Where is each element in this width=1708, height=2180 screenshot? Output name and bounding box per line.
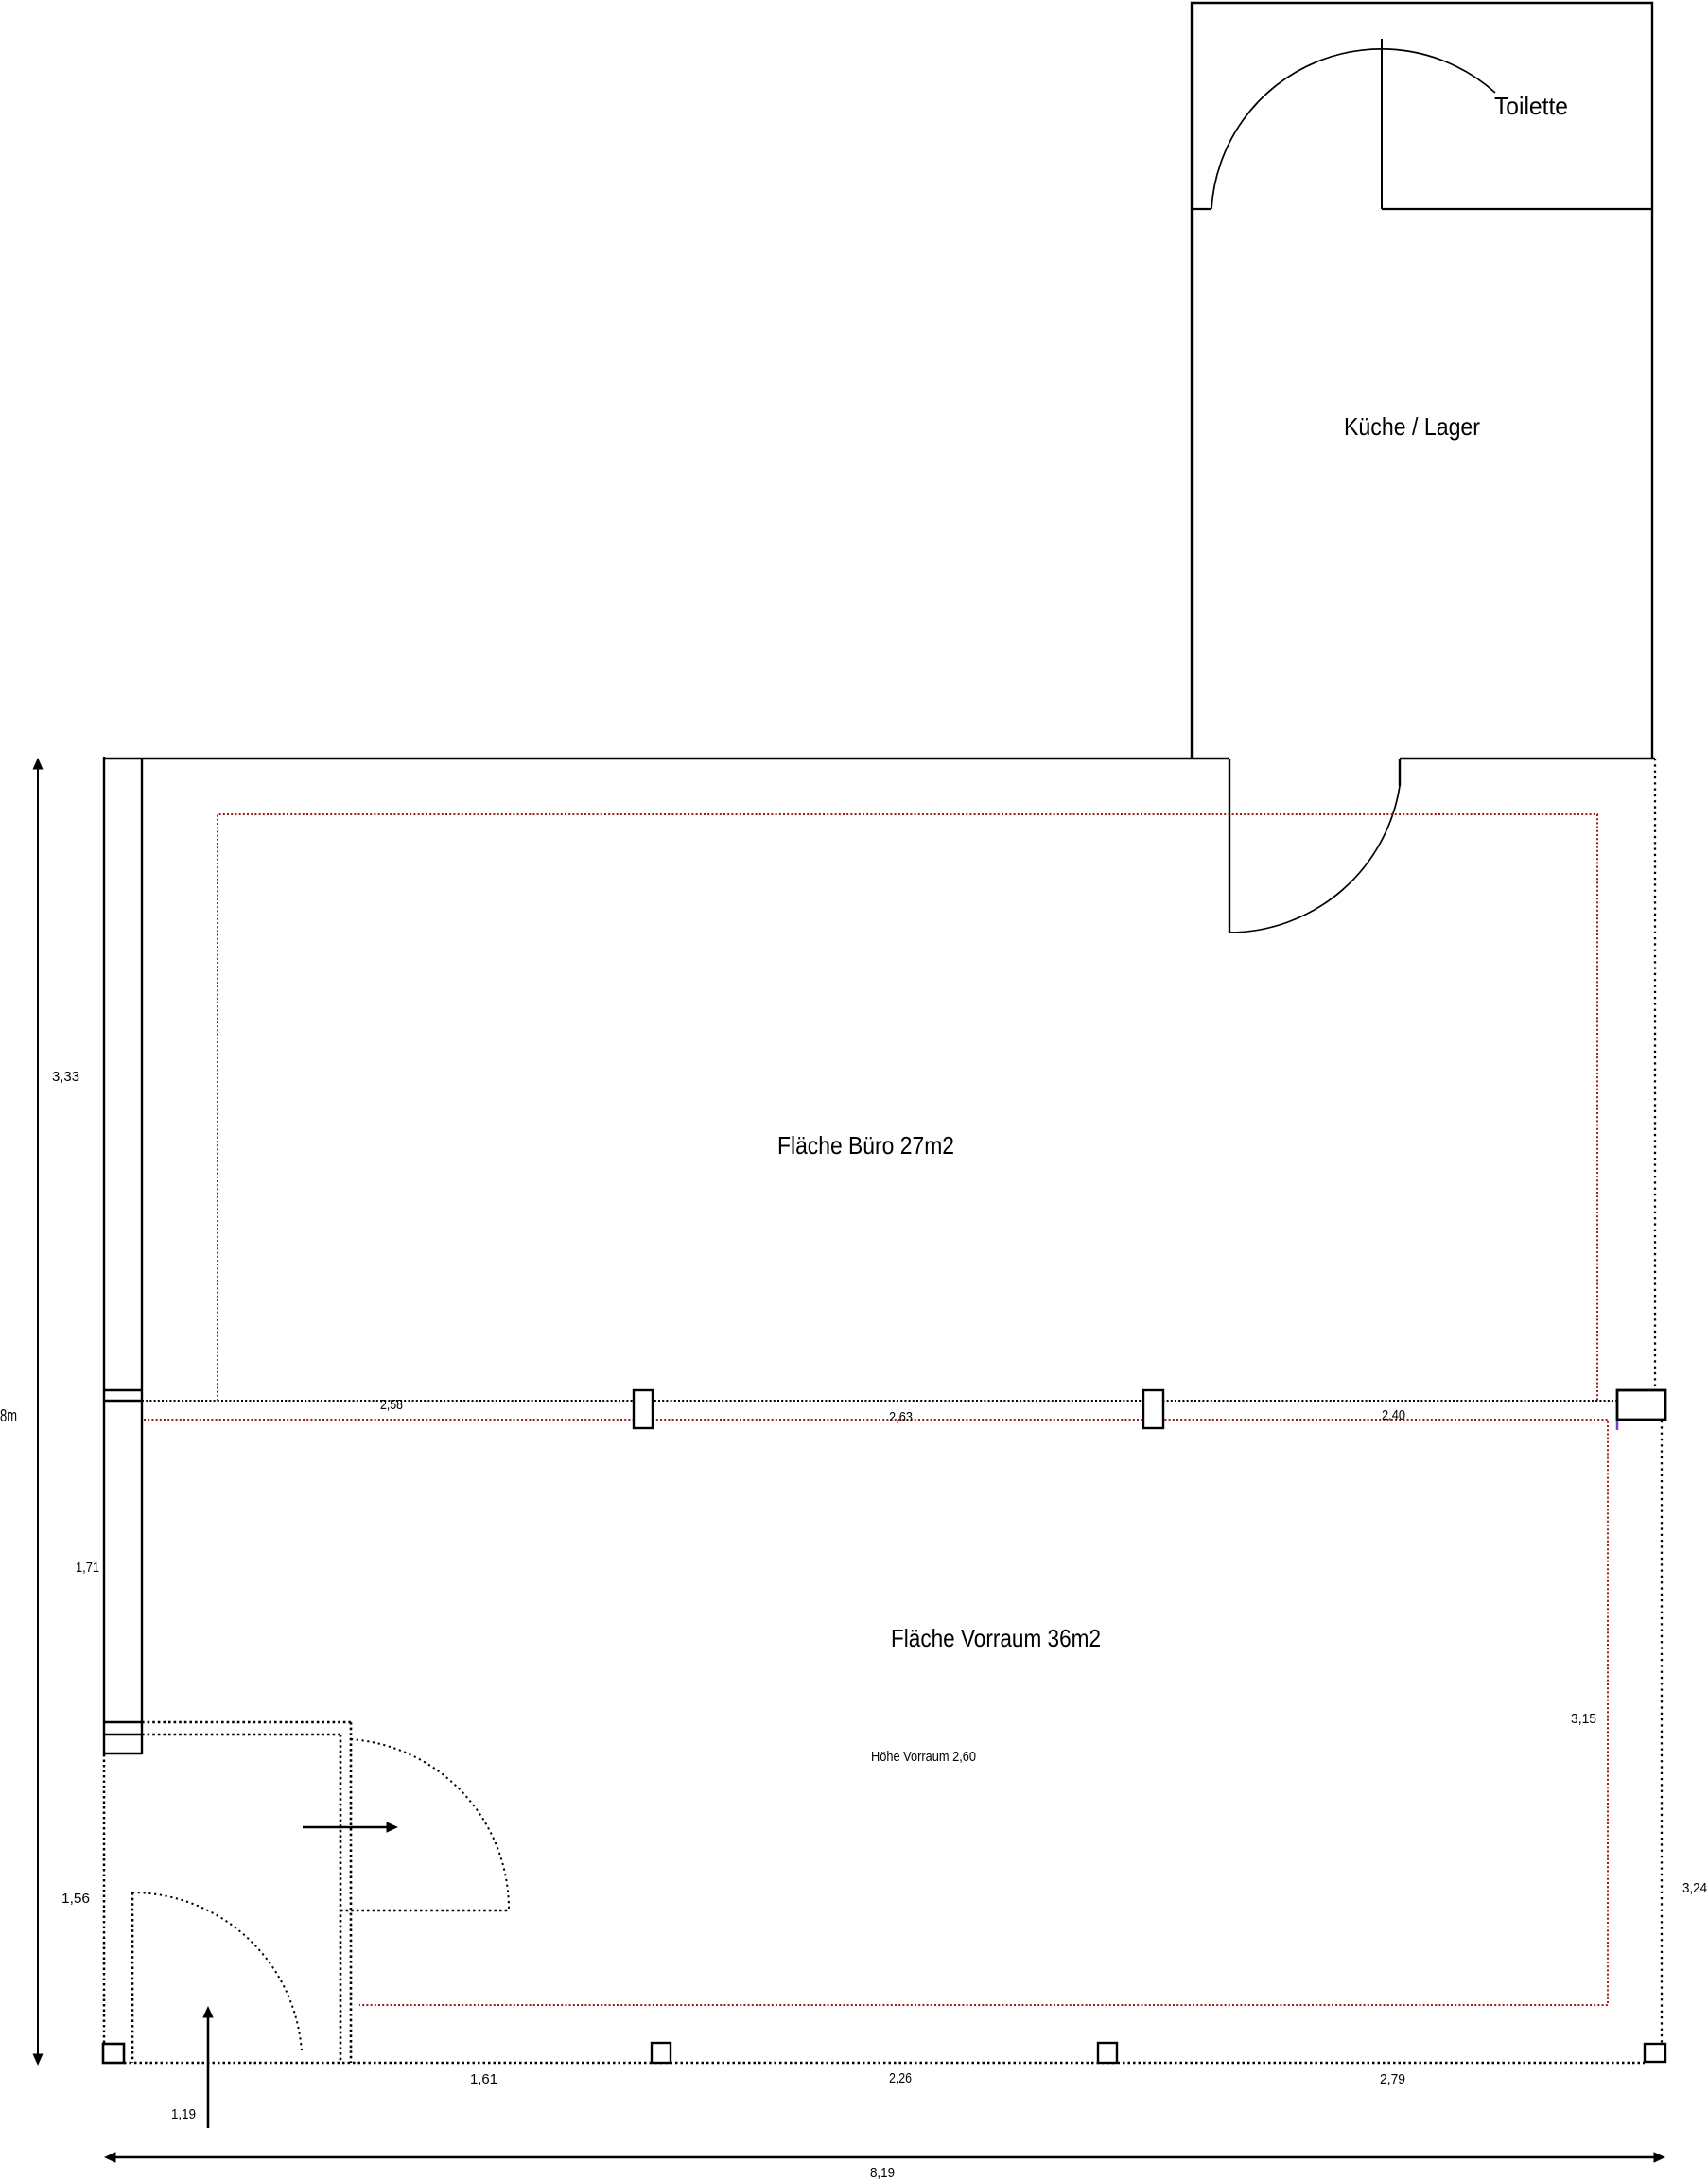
svg-text:1,71: 1,71: [76, 1560, 99, 1576]
svg-text:2,79: 2,79: [1380, 2071, 1405, 2087]
svg-text:3,15: 3,15: [1571, 1711, 1596, 1727]
svg-text:Küche / Lager: Küche / Lager: [1344, 412, 1480, 441]
svg-text:1,56: 1,56: [61, 1891, 90, 1907]
svg-text:3,33: 3,33: [52, 1069, 79, 1085]
svg-text:3,24: 3,24: [1682, 1880, 1707, 1896]
svg-text:2,63: 2,63: [889, 1409, 913, 1425]
svg-text:1,61: 1,61: [470, 2071, 497, 2087]
svg-text:Fläche Vorraum 36m2: Fläche Vorraum 36m2: [891, 1624, 1101, 1652]
svg-text:8m: 8m: [0, 1406, 17, 1425]
svg-text:1,19: 1,19: [171, 2106, 196, 2122]
svg-text:Höhe Vorraum 2,60: Höhe Vorraum 2,60: [871, 1749, 976, 1765]
svg-text:2,40: 2,40: [1382, 1407, 1405, 1423]
svg-text:Toilette: Toilette: [1494, 92, 1568, 120]
svg-text:2,26: 2,26: [889, 2070, 912, 2086]
svg-text:Fläche Büro 27m2: Fläche Büro 27m2: [777, 1131, 954, 1160]
svg-text:8,19: 8,19: [870, 2165, 895, 2180]
svg-text:2,58: 2,58: [380, 1397, 403, 1413]
